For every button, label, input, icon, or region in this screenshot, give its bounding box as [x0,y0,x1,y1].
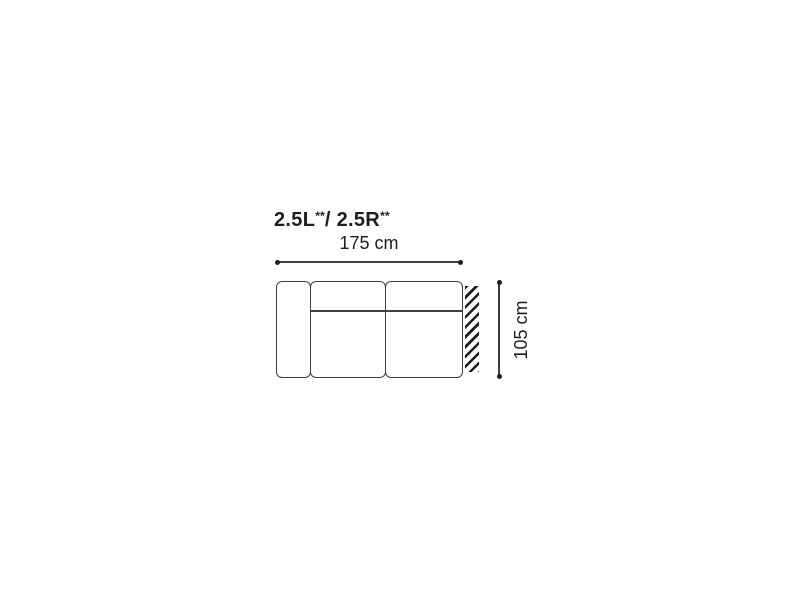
model-title-left-asterisks: ** [315,209,325,223]
sofa-seat-module-left [310,281,386,378]
dimension-endpoint-dot [497,280,502,285]
dimension-endpoint-dot [497,374,502,379]
sofa-armrest [276,281,311,378]
model-title-left: 2.5L [274,209,315,231]
backrest-divider-line [386,310,462,312]
width-dimension-line [277,261,461,263]
sofa-seat-module-right [385,281,463,378]
depth-dimension-label: 105 cm [511,300,531,359]
dimension-endpoint-dot [275,260,280,265]
model-title-right-asterisks: ** [380,209,390,223]
connection-side-hatch [465,286,479,372]
backrest-divider-line [311,310,385,312]
model-title-separator: / [325,209,337,231]
model-title: 2.5L**/ 2.5R** [274,205,390,231]
sofa-dimension-diagram: 2.5L**/ 2.5R** 175 cm 105 cm [0,0,800,600]
sofa-top-view [276,281,464,378]
dimension-endpoint-dot [458,260,463,265]
width-dimension-label: 175 cm [277,233,461,253]
depth-dimension-line [498,282,500,377]
model-title-right: 2.5R [337,209,380,231]
